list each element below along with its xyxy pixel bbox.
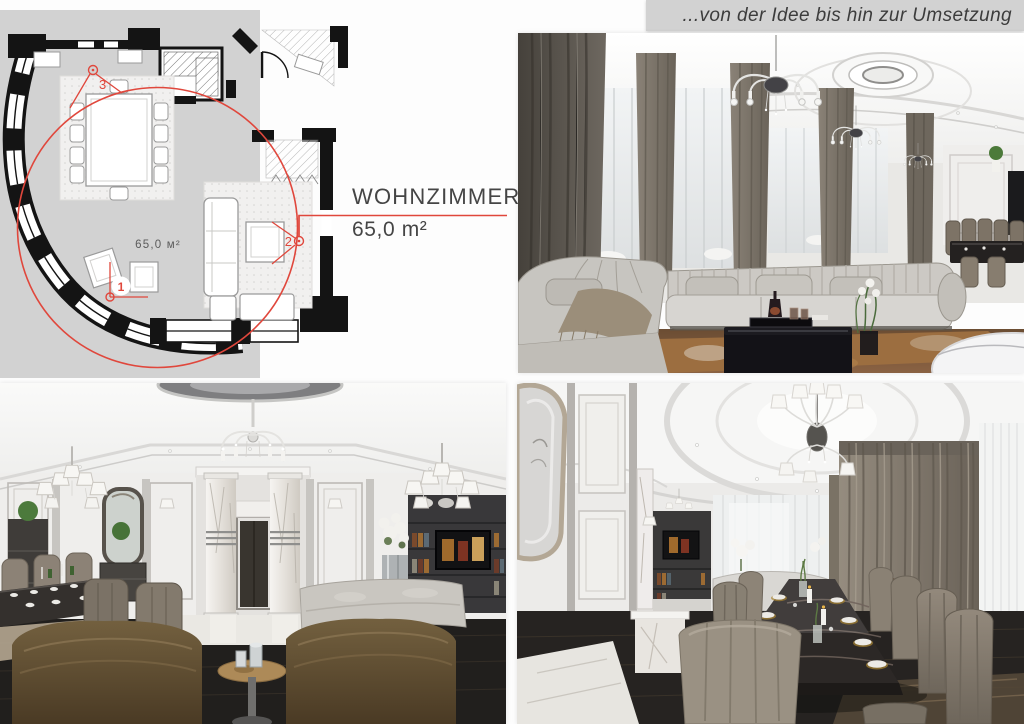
plan-bottom-wall [150, 318, 298, 344]
floor-plan-panel: 3 2 1 65,0 м² WOHNZIMMER 65,0 m² [0, 0, 518, 383]
foreground-chair [679, 620, 801, 724]
topiary [989, 146, 1003, 160]
plan-area-text: 65,0 м² [135, 239, 181, 251]
topiary [18, 501, 38, 521]
sconce [643, 517, 656, 525]
sofa [666, 263, 966, 331]
plan-dining-set [60, 76, 174, 200]
marker-1-number: 1 [118, 280, 125, 294]
armchair-left [12, 621, 202, 724]
header-tagline-strip: ...von der Idee bis hin zur Umsetzung [646, 0, 1024, 31]
room-label: WOHNZIMMER 65,0 m² [352, 184, 520, 242]
presentation-page: ...von der Idee bis hin zur Umsetzung [0, 0, 1024, 724]
dining-room-photo [517, 383, 1024, 724]
living-room-photo [518, 33, 1024, 373]
marker-3-number: 3 [99, 77, 106, 92]
room-area-text: 65,0 m² [352, 218, 520, 242]
marble-pilaster [637, 469, 653, 609]
living-room-render [518, 33, 1024, 373]
chaise-lounge [518, 257, 668, 373]
marker-2-number: 2 [285, 234, 292, 249]
room-name-text: WOHNZIMMER [352, 184, 520, 210]
wall-mirror [517, 385, 565, 559]
salon-render [0, 383, 506, 724]
armchair-right [286, 619, 456, 724]
tray [750, 318, 812, 327]
salon-photo [0, 383, 506, 724]
dining-room-render [517, 383, 1024, 724]
tagline-text: ...von der Idee bis hin zur Umsetzung [682, 5, 1012, 27]
